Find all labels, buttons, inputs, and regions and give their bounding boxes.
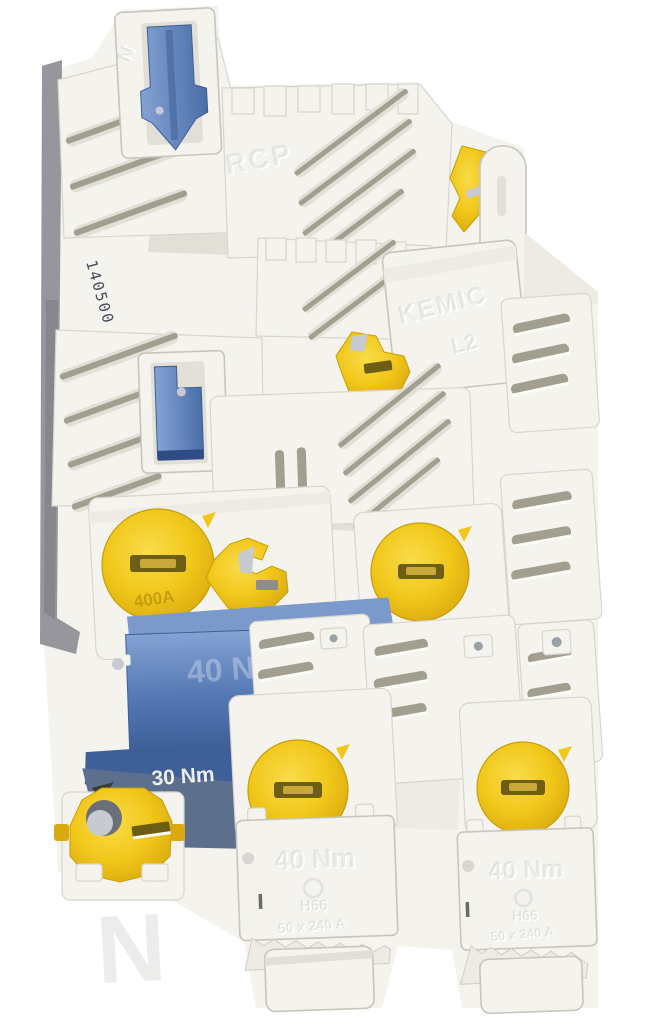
- tick-mark: [466, 902, 470, 917]
- cover-slot: [497, 176, 506, 216]
- latch-ear: [170, 824, 185, 841]
- svg-text:H66: H66: [512, 907, 538, 924]
- svg-text:30 Nm: 30 Nm: [149, 762, 213, 789]
- cap-slot-window: [406, 567, 436, 575]
- latch-metal: [87, 810, 113, 836]
- tick-mark: [258, 894, 262, 909]
- photo-canvas: N N RCP RCP 140500: [0, 0, 653, 1024]
- cap-slot-window: [509, 783, 537, 791]
- cover-right-torque: 40 Nm 40 Nm: [488, 855, 566, 887]
- vent-slot-vertical: [297, 447, 308, 491]
- svg-text:N: N: [94, 894, 169, 1004]
- right-upper-module: [501, 293, 600, 433]
- svg-text:40 Nm: 40 Nm: [488, 855, 564, 886]
- svg-text:40 Nm: 40 Nm: [274, 843, 356, 876]
- latch-foot: [76, 864, 102, 881]
- cover-right-model: H66 H66: [512, 907, 540, 925]
- embossed-n-bottom: N N: [94, 894, 171, 1007]
- blue-clip-base: [157, 449, 203, 461]
- latch-foot: [142, 864, 168, 881]
- bottom-left-latch: [54, 782, 185, 900]
- right-mid-module: [500, 469, 602, 625]
- cover-foot: [480, 956, 584, 1014]
- svg-text:H66: H66: [300, 897, 328, 915]
- cap-slot-window: [283, 786, 313, 794]
- right-shoulder: [524, 232, 598, 304]
- cover-center-model: H66 H66: [300, 897, 330, 917]
- cover-center-torque: 40 Nm 40 Nm: [274, 843, 358, 877]
- cap-slot-window: [140, 559, 176, 568]
- rotary-slot: [256, 580, 278, 590]
- pin: [112, 658, 124, 670]
- top-blue-clip-assembly: N N: [111, 8, 222, 159]
- latch-ear: [54, 824, 69, 841]
- fusebox-photo: N N RCP RCP 140500: [0, 0, 653, 1024]
- latch-torque: 30 Nm 30 Nm: [149, 761, 215, 790]
